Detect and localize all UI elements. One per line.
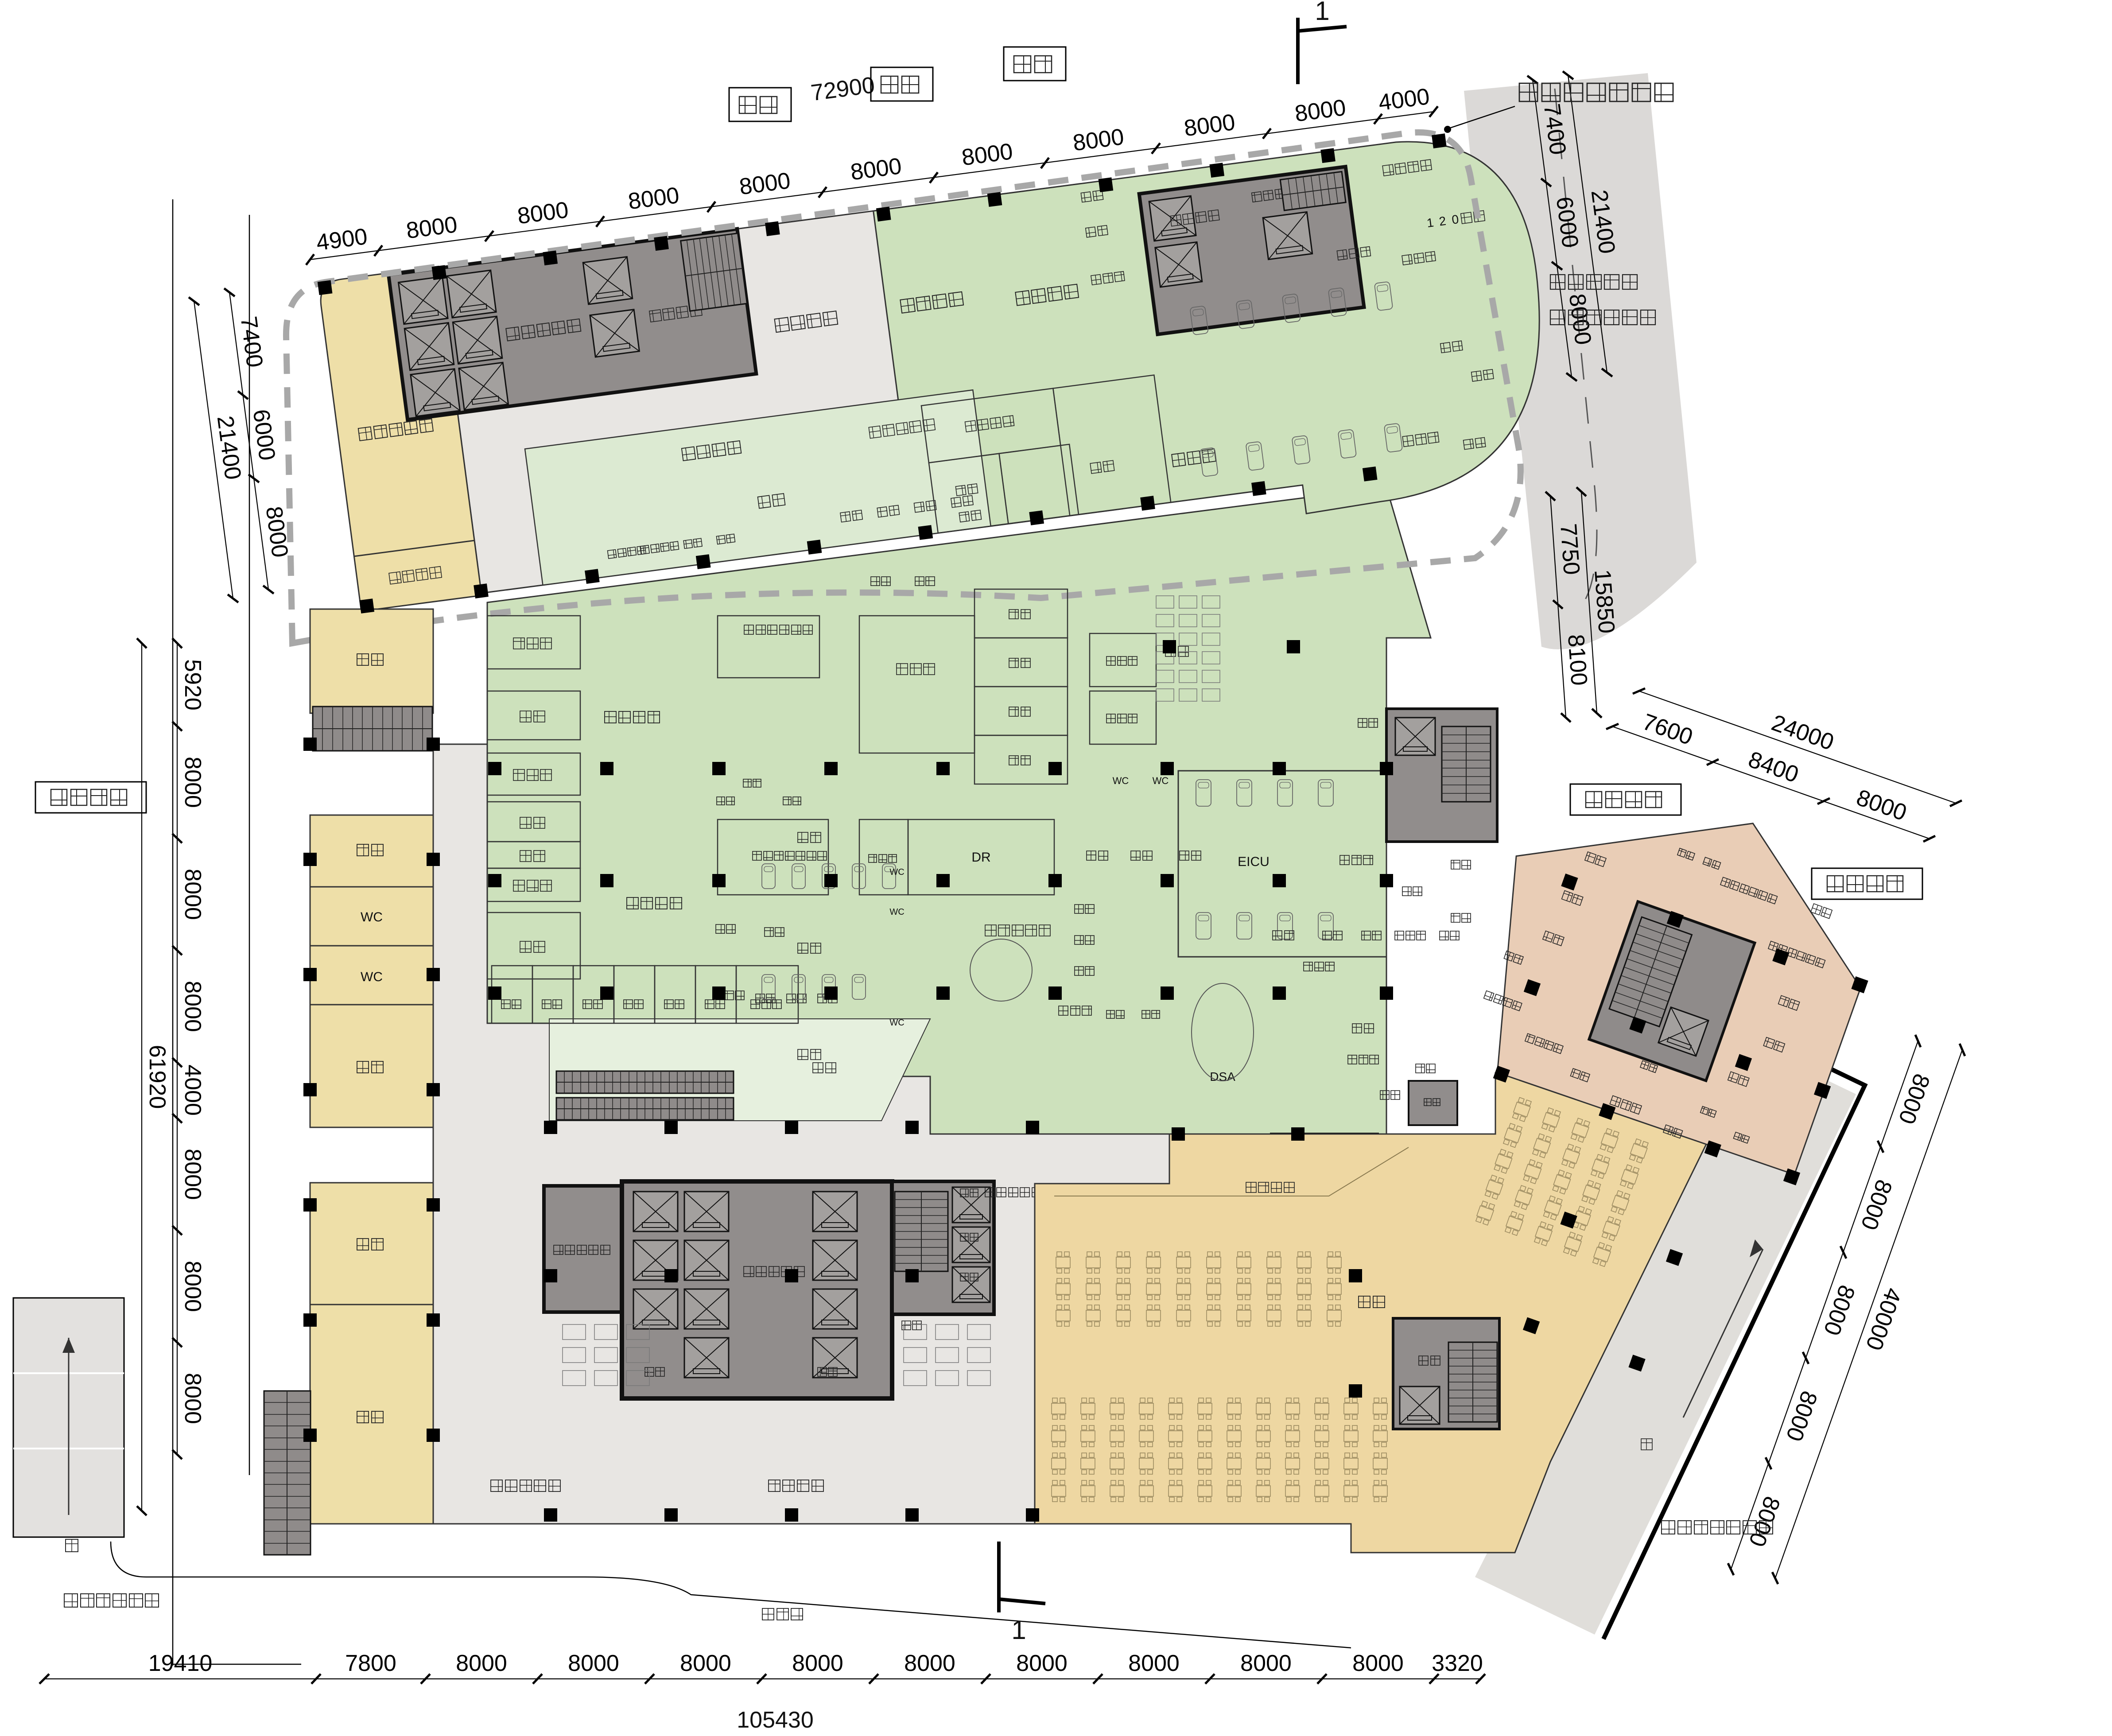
svg-text:WC: WC (1113, 775, 1129, 786)
svg-text:7750: 7750 (1555, 523, 1584, 575)
svg-text:WC: WC (361, 910, 383, 924)
svg-text:DR: DR (971, 850, 990, 865)
svg-text:8000: 8000 (180, 869, 206, 920)
svg-text:3320: 3320 (1432, 1651, 1483, 1676)
svg-text:8000: 8000 (1128, 1651, 1180, 1676)
svg-text:7800: 7800 (345, 1651, 396, 1676)
svg-text:8000: 8000 (568, 1651, 619, 1676)
svg-text:1: 1 (1011, 1615, 1026, 1645)
svg-text:15850: 15850 (1589, 569, 1619, 634)
svg-text:DSA: DSA (1210, 1070, 1235, 1084)
svg-text:EICU: EICU (1238, 854, 1270, 869)
svg-text:WC: WC (889, 1018, 904, 1028)
svg-text:61920: 61920 (144, 1045, 170, 1109)
svg-text:8000: 8000 (792, 1651, 843, 1676)
svg-text:105430: 105430 (737, 1707, 814, 1733)
svg-text:8000: 8000 (180, 1373, 206, 1424)
svg-text:8000: 8000 (180, 1149, 206, 1200)
svg-text:8100: 8100 (1563, 633, 1592, 686)
svg-text:8000: 8000 (456, 1651, 507, 1676)
svg-text:8000: 8000 (1016, 1651, 1068, 1676)
svg-text:WC: WC (1153, 775, 1169, 786)
svg-text:8000: 8000 (904, 1651, 955, 1676)
svg-text:5920: 5920 (180, 659, 206, 711)
svg-text:WC: WC (889, 907, 904, 917)
svg-text:8000: 8000 (680, 1651, 731, 1676)
svg-text:19410: 19410 (148, 1651, 213, 1676)
svg-text:WC: WC (889, 867, 904, 877)
svg-text:8000: 8000 (180, 1261, 206, 1312)
svg-text:8000: 8000 (1240, 1651, 1292, 1676)
svg-text:8000: 8000 (180, 757, 206, 808)
svg-text:WC: WC (361, 970, 383, 984)
svg-text:8000: 8000 (1352, 1651, 1404, 1676)
svg-text:1: 1 (1315, 0, 1329, 26)
svg-text:4000: 4000 (180, 1064, 206, 1116)
svg-text:8000: 8000 (180, 981, 206, 1032)
